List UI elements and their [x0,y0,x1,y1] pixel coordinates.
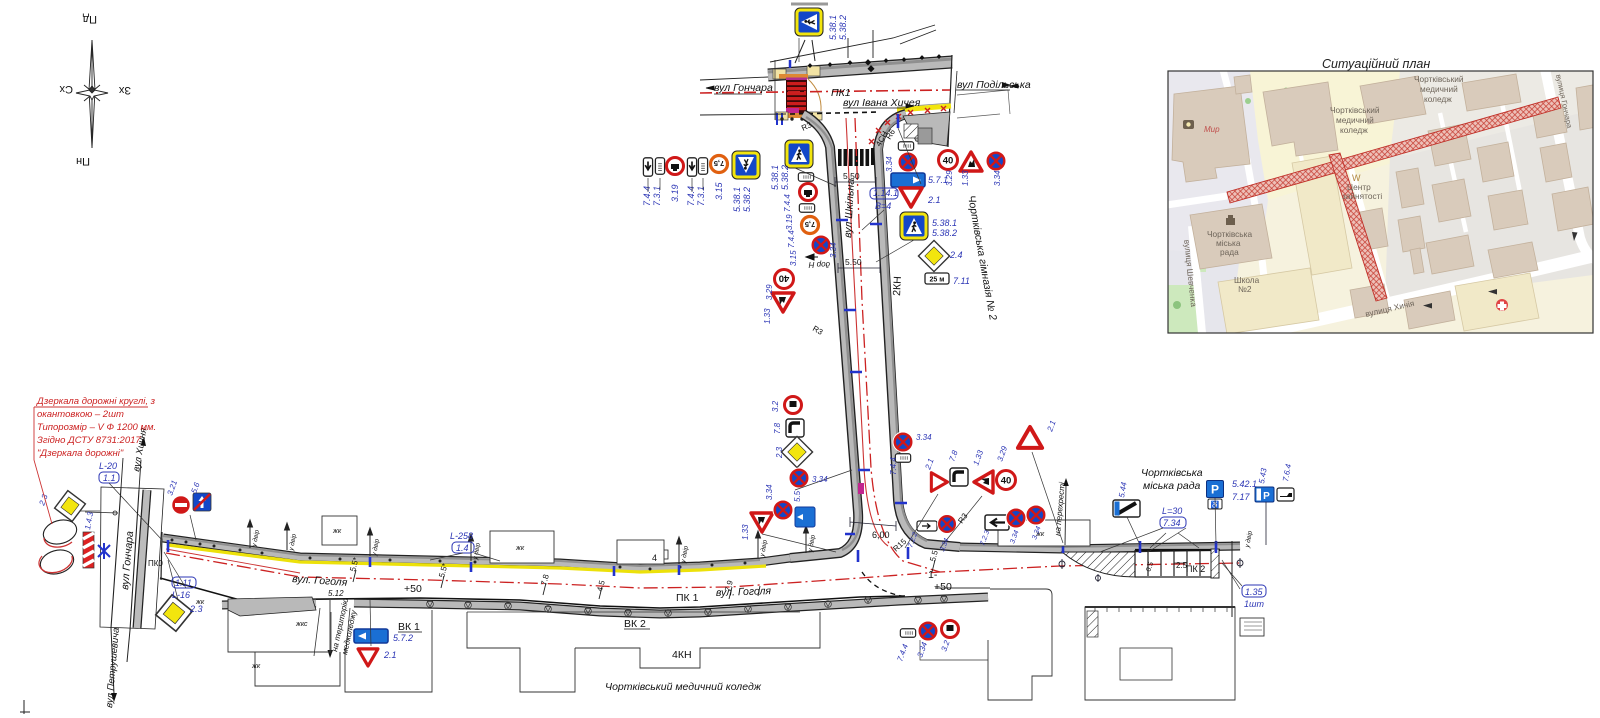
svg-text:жкс: жкс [295,621,308,628]
svg-text:жк: жк [515,545,525,552]
svg-text:В=4: В=4 [875,201,891,211]
svg-text:ПК 2: ПК 2 [1186,564,1205,574]
svg-text:2.4: 2.4 [949,250,963,260]
svg-text:Типорозмір – V Ф 1200 мм.: Типорозмір – V Ф 1200 мм. [37,422,156,433]
svg-text:1.14.1: 1.14.1 [873,188,898,198]
svg-text:1.33: 1.33 [763,308,772,324]
svg-text:3.34: 3.34 [829,242,838,258]
svg-text:7.4.4: 7.4.4 [686,186,696,206]
svg-text:5.38.1: 5.38.1 [828,15,838,40]
svg-text:Чортківський медичний коледж: Чортківський медичний коледж [605,681,762,693]
svg-text:медичний: медичний [1420,84,1458,94]
svg-text:Дзеркала дорожні круглі, з: Дзеркала дорожні круглі, з [36,396,156,407]
svg-text:25 м: 25 м [930,277,945,284]
svg-text:7.3.1: 7.3.1 [696,186,706,206]
svg-text:Сх: Сх [59,83,73,95]
svg-text:3.19: 3.19 [670,184,680,202]
svg-text:4КН: 4КН [672,649,692,661]
svg-text:2.3: 2.3 [775,446,784,459]
svg-text:ВК 1: ВК 1 [398,621,420,633]
svg-text:4: 4 [652,553,657,563]
svg-text:5.38.1: 5.38.1 [932,218,957,228]
svg-text:3.34: 3.34 [916,433,932,442]
svg-text:2.1: 2.1 [927,195,941,205]
svg-text:6,00: 6,00 [872,530,890,540]
svg-text:5.12: 5.12 [328,589,344,598]
svg-text:7.34: 7.34 [1163,518,1181,528]
svg-text:"Дзеркала дорожні": "Дзеркала дорожні" [37,448,124,459]
svg-text:7.4.4: 7.4.4 [889,457,898,475]
svg-text:1.11: 1.11 [175,578,192,588]
svg-text:7.4.4: 7.4.4 [787,230,796,248]
svg-text:дор Н: дор Н [808,260,830,269]
svg-text:вул Подільська: вул Подільська [957,79,1031,91]
svg-text:5.42.1: 5.42.1 [1232,479,1257,489]
svg-text:коледж: коледж [1340,125,1368,135]
svg-text:5.7.1: 5.7.1 [928,175,948,185]
svg-text:5.5: 5.5 [793,490,802,502]
svg-text:3.34: 3.34 [885,156,894,172]
svg-text:Зх: Зх [118,84,131,96]
svg-text:5.38.2: 5.38.2 [932,228,957,238]
svg-text:Згідно ДСТУ 8731:2017: Згідно ДСТУ 8731:2017 [37,435,141,446]
svg-text:7.11: 7.11 [953,276,970,286]
svg-text:L-16: L-16 [172,590,190,600]
svg-text:5.38.2: 5.38.2 [838,15,848,40]
svg-text:Пн: Пн [76,155,90,167]
svg-text:ВК 2: ВК 2 [624,618,646,630]
svg-text:1.4: 1.4 [456,543,469,553]
svg-text:5.7.2: 5.7.2 [393,633,413,643]
svg-text:7.4.4: 7.4.4 [783,194,792,212]
svg-text:3.15: 3.15 [714,181,724,200]
svg-text:5.38.2: 5.38.2 [780,165,790,190]
svg-text:Чортківський: Чортківський [1330,105,1380,115]
svg-text:7.17: 7.17 [1232,492,1251,502]
svg-text:3.34: 3.34 [812,475,828,484]
svg-text:ПК 1: ПК 1 [676,592,699,604]
svg-text:P: P [1263,491,1270,502]
svg-text:3.34: 3.34 [765,484,774,500]
svg-text:1шт: 1шт [1244,599,1264,609]
svg-text:3.34: 3.34 [993,170,1002,186]
svg-text:+50: +50 [934,581,952,593]
svg-text:1.33: 1.33 [741,524,750,540]
svg-text:2.3: 2.3 [189,604,203,614]
svg-text:Мир: Мир [1204,125,1220,134]
svg-text:1-: 1- [928,569,938,581]
svg-text:коледж: коледж [1424,94,1452,104]
svg-text:L-258: L-258 [450,531,473,541]
svg-text:вул Гончара: вул Гончара [714,82,773,94]
svg-text:міська рада: міська рада [1143,480,1201,492]
svg-text:окантовкою – 2шт: окантовкою – 2шт [37,409,124,420]
svg-text:Чортківська: Чортківська [1141,467,1203,479]
svg-text:L-20: L-20 [99,461,117,471]
svg-text:рада: рада [1220,247,1239,257]
svg-text:1.33: 1.33 [961,170,970,186]
svg-text:жк: жк [251,663,261,670]
svg-text:7.8: 7.8 [773,422,782,434]
svg-text:зайнятості: зайнятості [1342,191,1382,201]
svg-text:L=30: L=30 [1162,506,1182,516]
svg-text:Ситуаційний план: Ситуаційний план [1322,57,1430,71]
svg-text:7.3.1: 7.3.1 [652,186,662,206]
svg-text:+50: +50 [404,583,422,595]
svg-text:медичний: медичний [1336,115,1374,125]
svg-text:3.15: 3.15 [789,250,798,266]
svg-text:7.4.4: 7.4.4 [642,186,652,206]
svg-text:1.1: 1.1 [103,473,116,483]
svg-text:Чортківський: Чортківський [1414,74,1464,84]
svg-text:3.19: 3.19 [785,214,794,230]
svg-text:2.1: 2.1 [383,650,397,660]
svg-text:5.38.1: 5.38.1 [770,165,780,190]
svg-text:Пд: Пд [82,13,97,25]
svg-text:5.50: 5.50 [843,171,860,181]
svg-text:2.5: 2.5 [1176,561,1188,570]
svg-text:5.38.1: 5.38.1 [732,187,742,212]
svg-text:ПК0: ПК0 [148,559,163,568]
svg-text:жк: жк [332,528,342,535]
svg-text:3.2: 3.2 [771,400,780,412]
svg-text:5.38.2: 5.38.2 [742,187,752,212]
svg-text:2КН: 2КН [891,276,904,296]
svg-text:№2: №2 [1238,284,1252,294]
svg-text:1.35: 1.35 [1245,587,1264,597]
svg-text:ПК1: ПК1 [831,87,851,99]
svg-text:3.29: 3.29 [765,284,774,300]
svg-text:5.50: 5.50 [845,257,862,267]
